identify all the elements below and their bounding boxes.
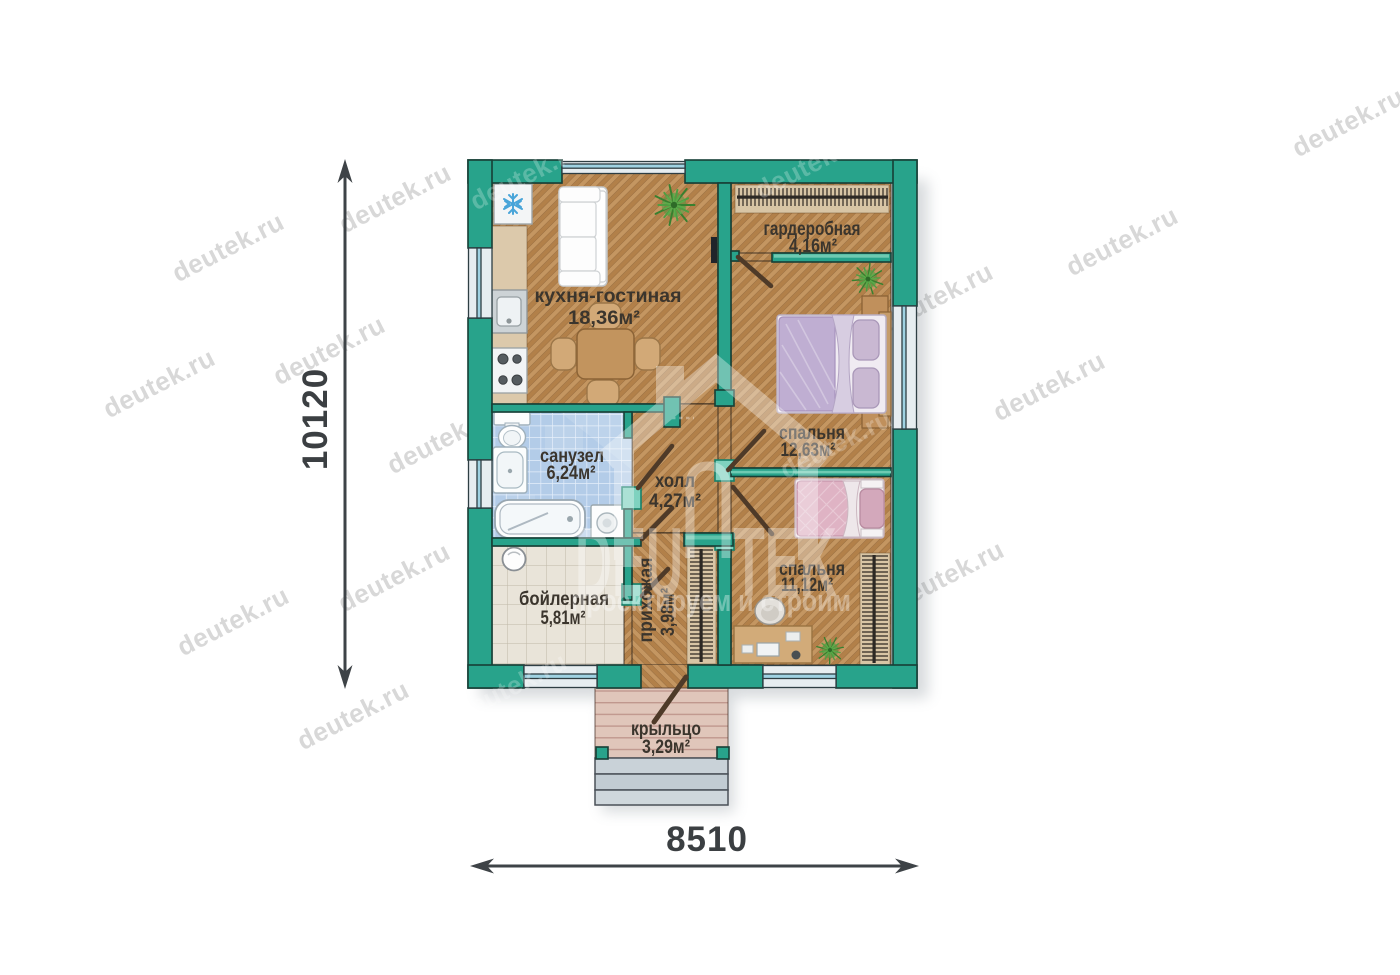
svg-text:3,29м²: 3,29м² xyxy=(642,737,690,758)
svg-text:6,24м²: 6,24м² xyxy=(547,463,596,484)
svg-text:4,16м²: 4,16м² xyxy=(789,236,837,257)
svg-text:проектируем и строим: проектируем и строим xyxy=(571,583,851,618)
svg-text:18,36м²: 18,36м² xyxy=(568,308,640,329)
svg-text:10120: 10120 xyxy=(296,368,335,470)
svg-text:кухня-гостиная: кухня-гостиная xyxy=(535,286,682,307)
svg-text:8510: 8510 xyxy=(666,820,748,859)
